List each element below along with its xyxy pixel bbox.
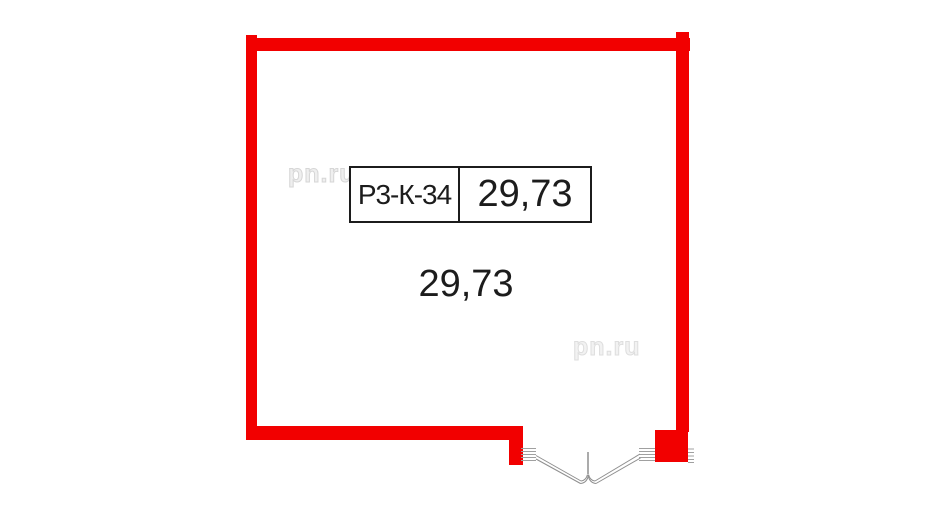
wall-bottom: [246, 426, 522, 440]
unit-label-box: Р3-К-34 29,73: [349, 166, 592, 223]
pnru-watermark-upper: pn.ru: [288, 160, 356, 189]
wall-left: [246, 35, 257, 437]
unit-code-cell: Р3-К-34: [351, 168, 460, 221]
room-area-label: 29,73: [390, 263, 542, 306]
double-door-swing-icon: [515, 444, 700, 490]
unit-code: Р3-К-34: [358, 179, 451, 211]
unit-area-value: 29,73: [477, 173, 572, 216]
wall-right: [676, 32, 689, 432]
unit-area-cell: 29,73: [460, 168, 590, 221]
floor-plan-canvas: pn.ru pn.ru Р3-К-34 29,73 29,73: [0, 0, 936, 527]
pnru-watermark-lower: pn.ru: [573, 333, 641, 362]
wall-top: [246, 38, 690, 51]
